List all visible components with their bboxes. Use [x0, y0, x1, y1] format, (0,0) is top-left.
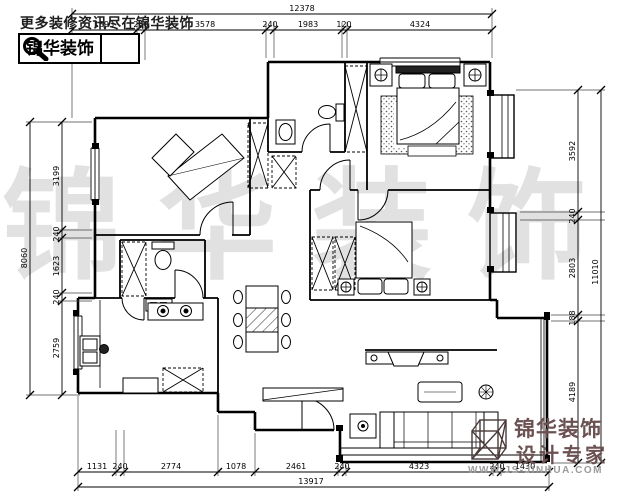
floorplan-page: 锦 华 装 饰	[0, 0, 625, 500]
dim-bottom-seg: 1078	[226, 462, 246, 471]
dim-bottom-seg: 2461	[286, 462, 306, 471]
magnifier-icon	[102, 35, 138, 62]
dim-left-seg: 2759	[52, 338, 61, 358]
dim-left-seg: 1623	[52, 256, 61, 276]
bedroom-2	[338, 222, 430, 295]
dim-top-seg: 1983	[298, 20, 318, 29]
dim-bottom-seg: 1131	[87, 462, 107, 471]
dim-top-seg: 3578	[195, 20, 215, 29]
dim-left-seg: 240	[52, 289, 61, 304]
dim-top-seg: 120	[336, 20, 351, 29]
dim-top-overall: 12378	[289, 4, 314, 13]
bed-diagonal	[152, 134, 244, 200]
dim-right-seg: 3592	[568, 141, 577, 161]
dim-bottom-seg: 4323	[409, 462, 429, 471]
dim-left-overall: 8060	[20, 248, 29, 268]
promo-tagline: 更多装修资讯尽在锦华装饰	[20, 13, 194, 33]
dim-right-seg: 240	[568, 208, 577, 223]
dim-bottom-seg: 240	[334, 462, 349, 471]
doors	[122, 124, 388, 430]
dim-right-seg: 188	[568, 310, 577, 325]
dim-right-seg: 4189	[568, 382, 577, 402]
master-bedroom	[370, 64, 486, 156]
footer-brand-subtitle: 设计专家	[516, 439, 608, 468]
dim-left-seg: 240	[52, 226, 61, 241]
wall-piers	[73, 90, 550, 462]
dim-bottom-seg: 240	[112, 462, 127, 471]
dim-right-seg: 2803	[568, 258, 577, 278]
living-room	[263, 352, 498, 448]
bathroom-2	[146, 242, 174, 311]
bathroom-top	[276, 104, 344, 144]
dim-top-seg: 240	[262, 20, 277, 29]
exterior-walls	[78, 62, 547, 462]
dim-right-overall: 11010	[591, 259, 600, 284]
dim-top-seg: 4324	[410, 20, 430, 29]
dim-left-seg: 3199	[52, 166, 61, 186]
dining-table	[234, 286, 291, 352]
top-logo: 锦华装饰	[18, 33, 140, 64]
dim-bottom-overall: 13917	[298, 477, 323, 486]
footer-website: WWW.JS-JINHUA.COM	[468, 465, 603, 476]
dim-bottom-seg: 2774	[161, 462, 181, 471]
